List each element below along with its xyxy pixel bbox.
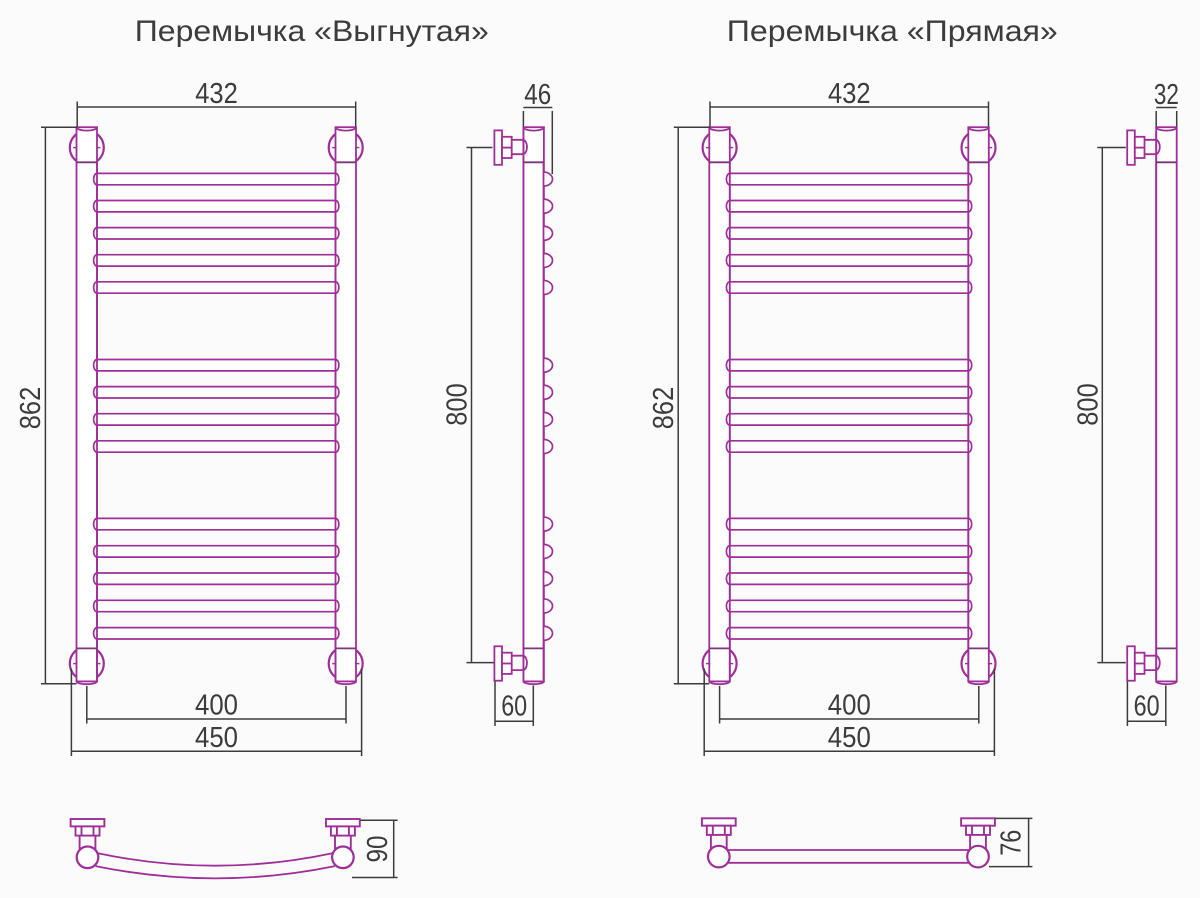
- svg-text:800: 800: [442, 383, 474, 426]
- svg-text:432: 432: [195, 78, 238, 110]
- svg-text:862: 862: [15, 387, 47, 430]
- svg-text:60: 60: [501, 690, 527, 722]
- svg-text:46: 46: [524, 79, 551, 111]
- svg-text:Перемычка «Прямая»: Перемычка «Прямая»: [727, 15, 1058, 48]
- svg-text:400: 400: [195, 689, 238, 721]
- svg-text:32: 32: [1154, 79, 1179, 111]
- svg-text:90: 90: [362, 836, 394, 863]
- svg-text:60: 60: [1134, 690, 1160, 722]
- svg-text:450: 450: [195, 722, 238, 754]
- svg-text:Перемычка «Выгнутая»: Перемычка «Выгнутая»: [135, 15, 489, 48]
- svg-text:76: 76: [996, 830, 1028, 856]
- svg-text:800: 800: [1073, 383, 1105, 426]
